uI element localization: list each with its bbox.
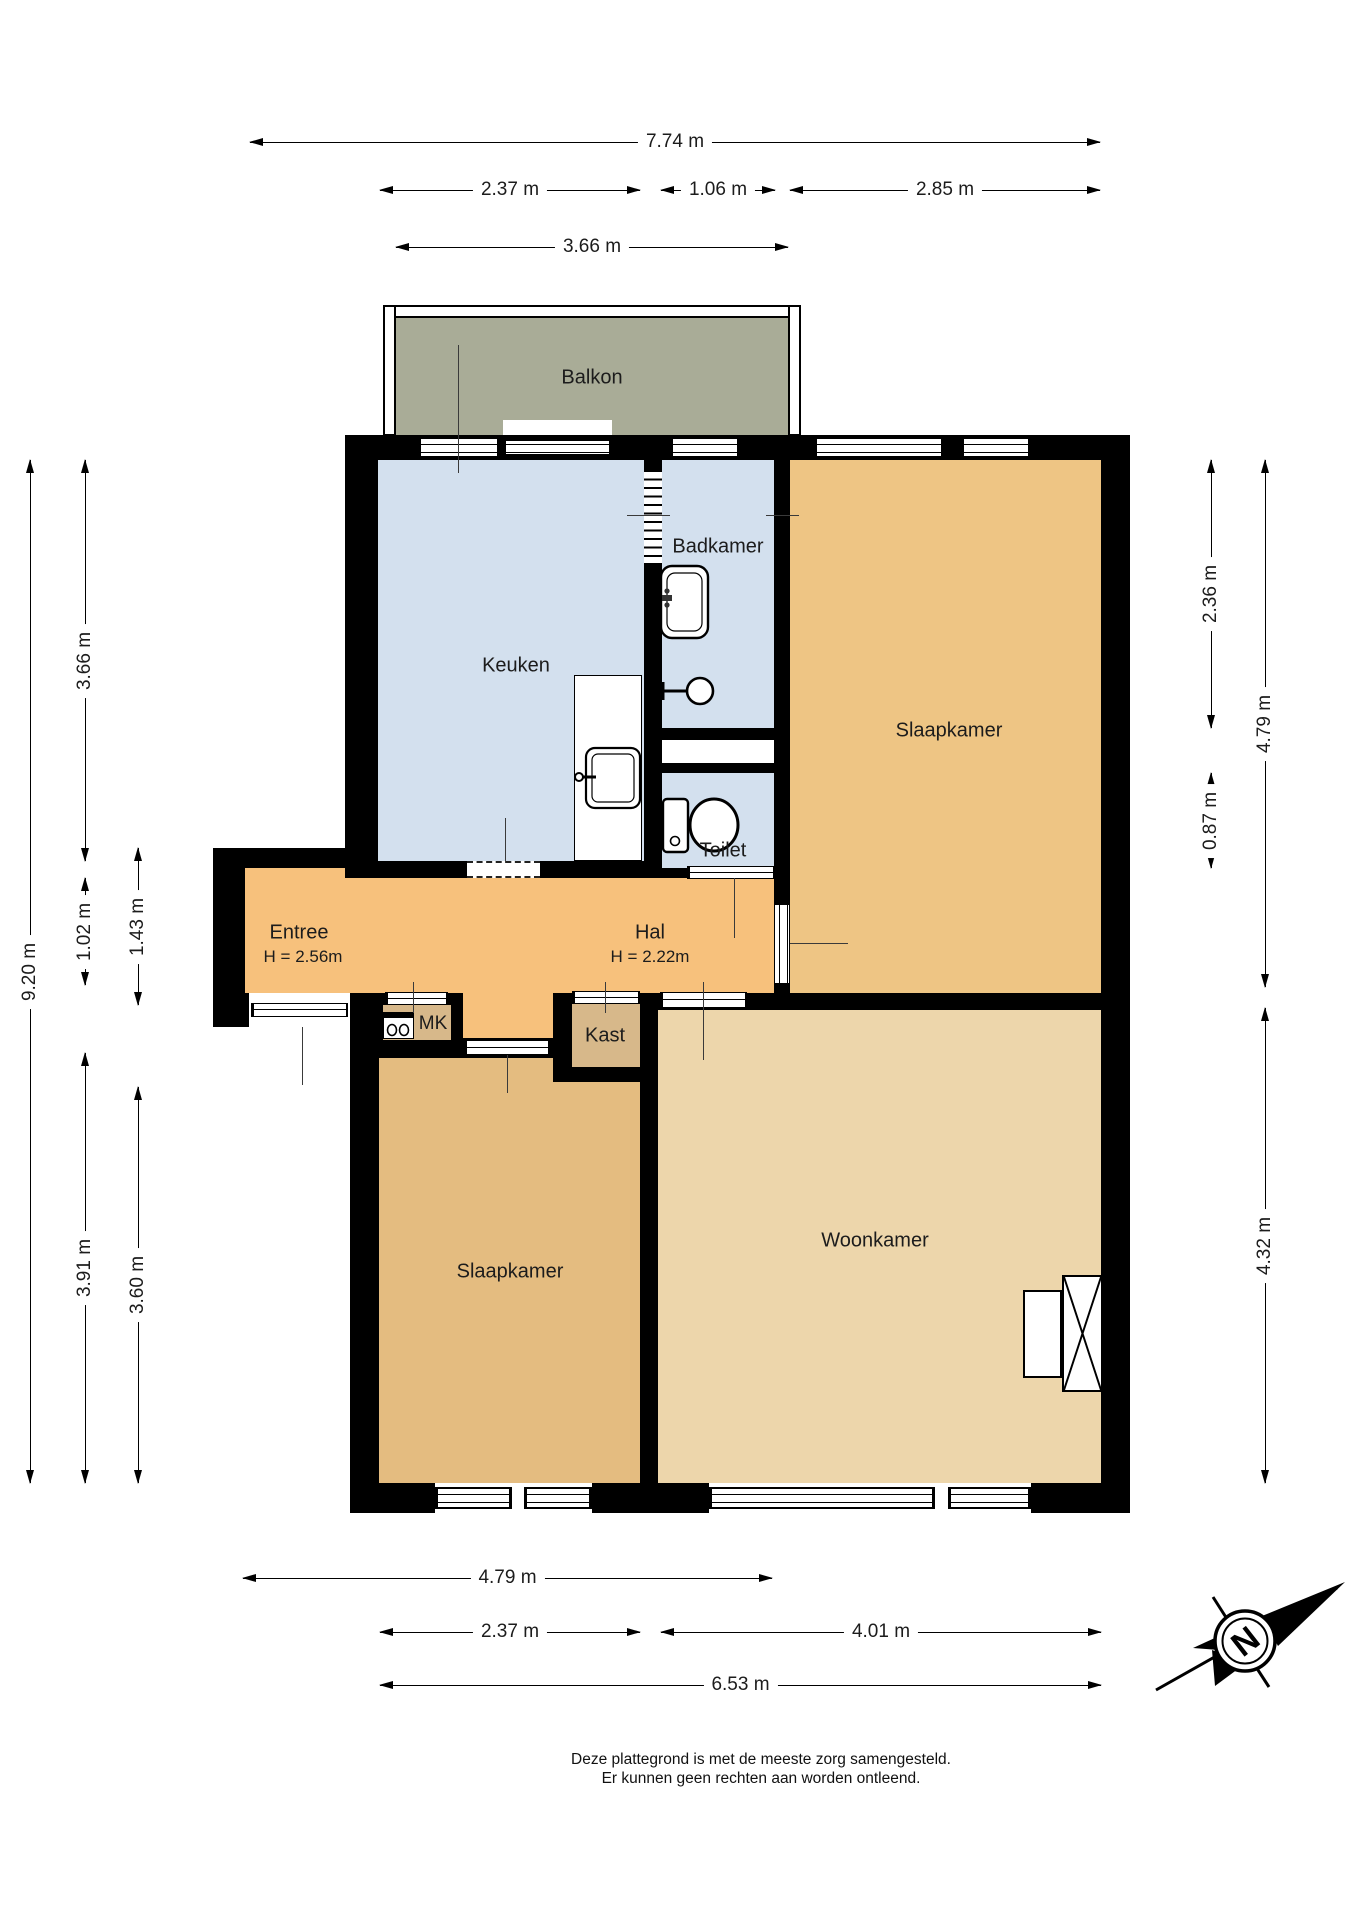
tick-mk-door — [413, 982, 414, 1013]
dim-toilet-height: 0.87 m — [1211, 773, 1212, 868]
north-compass: N — [1130, 1555, 1358, 1725]
kitchen-sink-icon — [575, 748, 640, 808]
room-label-slaapkamer-top: Slaapkamer — [896, 720, 1003, 743]
tick-slaapkamer-wall — [766, 515, 799, 516]
room-label-hal: Hal — [635, 922, 665, 945]
room-label-entree: Entree — [270, 922, 329, 945]
room-label-mk: MK — [419, 1013, 448, 1035]
dim-keuken-width: 2.37 m — [380, 190, 640, 191]
dim-bottom-total-width: 6.53 m — [380, 1685, 1101, 1686]
floorplan-page: Balkon Keuken Badkamer Slaapkamer Toilet… — [0, 0, 1358, 1920]
disclaimer-line-1: Deze plattegrond is met de meeste zorg s… — [571, 1750, 951, 1769]
disclaimer-text: Deze plattegrond is met de meeste zorg s… — [571, 1750, 951, 1789]
tick-balcony-door — [458, 345, 459, 473]
tick-slaapkamer-top-door — [790, 943, 848, 944]
washbasin-icon — [661, 566, 708, 638]
dim-keuken-height: 3.66 m — [85, 460, 86, 861]
room-label-balkon: Balkon — [561, 367, 622, 390]
shower-icon — [662, 678, 713, 704]
tick-keuken-opening — [505, 818, 506, 863]
tick-toilet-door — [734, 878, 735, 938]
dim-badkamer-width: 1.06 m — [661, 190, 775, 191]
dim-total-height: 9.20 m — [30, 460, 31, 1483]
dim-slaapkamer-bottom-height-outer: 3.91 m — [85, 1053, 86, 1483]
dim-slaapkamer-bottom-width: 2.37 m — [380, 1632, 640, 1633]
dim-balkon-width: 3.66 m — [396, 247, 788, 248]
dim-hal-height: 1.02 m — [85, 878, 86, 985]
dim-woonkamer-width: 4.01 m — [661, 1632, 1101, 1633]
dim-badkamer-height: 2.36 m — [1211, 460, 1212, 728]
dim-slaapkamer-top-width: 2.85 m — [790, 190, 1100, 191]
tick-slaapkamer-bottom-door — [507, 1055, 508, 1093]
room-label-toilet: Toilet — [700, 840, 747, 863]
meter-dials-icon — [388, 1025, 409, 1036]
tick-kast-door — [605, 982, 606, 1013]
dim-slaapkamer-top-height: 4.79 m — [1265, 460, 1266, 987]
disclaimer-line-2: Er kunnen geen rechten aan worden ontlee… — [571, 1769, 951, 1788]
dim-total-width: 7.74 m — [250, 142, 1100, 143]
room-label-slaapkamer-bottom: Slaapkamer — [457, 1261, 564, 1284]
dim-woonkamer-height: 4.32 m — [1265, 1008, 1266, 1483]
room-label-keuken: Keuken — [482, 655, 550, 678]
tick-badkamer-wall — [627, 515, 670, 516]
room-label-woonkamer: Woonkamer — [821, 1230, 928, 1253]
tick-woonkamer-door — [703, 982, 704, 1060]
room-sublabel-hal: H = 2.22m — [611, 947, 690, 967]
tick-entrance-door — [302, 1027, 303, 1085]
room-label-badkamer: Badkamer — [672, 536, 763, 559]
dim-entree-height: 1.43 m — [138, 848, 139, 1005]
dim-slaapkamer-bottom-height-inner: 3.60 m — [138, 1087, 139, 1483]
dim-bottom-left-width: 4.79 m — [243, 1578, 772, 1579]
room-label-kast: Kast — [585, 1025, 625, 1048]
shaft-x-icon — [1064, 1277, 1101, 1390]
room-sublabel-entree: H = 2.56m — [264, 947, 343, 967]
